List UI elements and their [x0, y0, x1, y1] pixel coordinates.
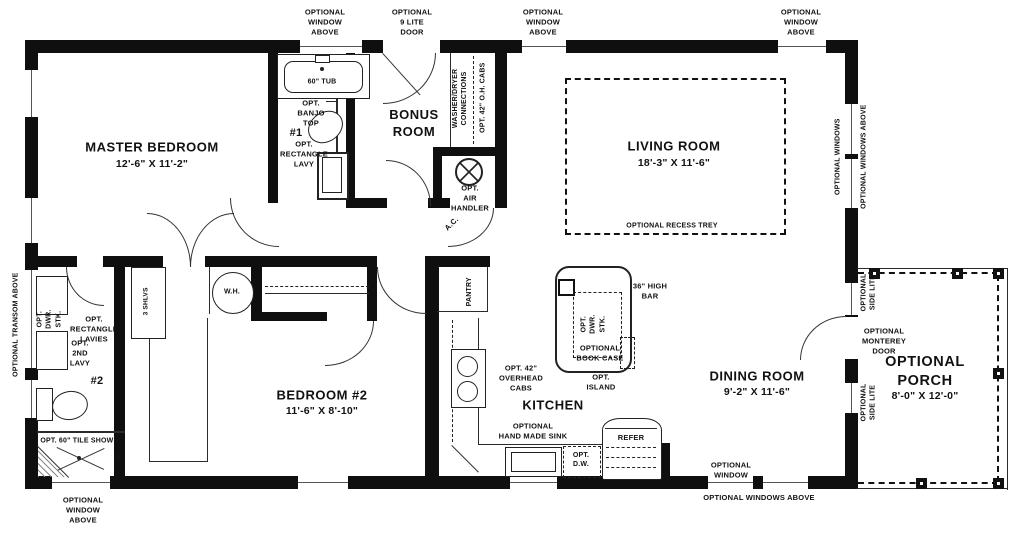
window-glass-line: [851, 159, 852, 208]
label-3-shelves-text: 3 SHLVS: [143, 287, 152, 315]
door-arc-bath1: [230, 198, 279, 247]
shower-door-arrow: [116, 452, 125, 462]
label-bonus-room: BONUS ROOM: [389, 107, 438, 141]
label-2nd-lavy: OPT. 2ND LAVY: [70, 338, 90, 367]
door-arc-bath2: [66, 267, 104, 306]
wall-kitchen-left: [425, 267, 439, 476]
window-glass-line: [31, 380, 32, 418]
label-bedroom2-dims: 11'-6" X 8'-10": [286, 405, 358, 419]
refrigerator-dash: [606, 457, 656, 459]
label-optional-porch: OPTIONAL PORCH: [885, 353, 965, 391]
burner: [457, 356, 478, 377]
porch-rail-dashed: [858, 482, 998, 486]
label-transom-above-text: OPTIONAL TRANSOM ABOVE: [11, 273, 20, 377]
label-monterey-door: OPTIONAL MONTEREY DOOR: [862, 326, 906, 355]
label-island-dwr-stack-text: OPT. DWR. STK.: [580, 314, 608, 333]
label-high-bar: 36" HIGH BAR: [633, 281, 667, 301]
shower-top-line: [37, 431, 125, 433]
banjo-leader-line: [326, 101, 336, 102]
porch-post: [993, 268, 1004, 279]
door-opening-9lite: [383, 40, 440, 53]
counter-corner-diagonal: [451, 445, 479, 473]
lav-bath2: [36, 331, 68, 370]
wall-air-room-left: [433, 147, 442, 200]
toilet-bath2-tank: [36, 388, 53, 421]
pantry-right-line: [487, 267, 488, 312]
alcove-line: [149, 461, 208, 462]
label-air-handler: OPT. AIR HANDLER: [451, 183, 489, 212]
porch-edge-line: [857, 488, 1008, 489]
wall-closet-bottom: [251, 312, 327, 321]
porch-post: [993, 478, 1004, 489]
door-arc-master: [147, 213, 191, 267]
door-arc-monterey: [800, 316, 846, 360]
wall-air-room-top: [438, 147, 495, 156]
label-bath2-number: #2: [91, 374, 104, 388]
label-dishwasher: OPT. D.W.: [573, 451, 589, 469]
window-glass-line: [300, 46, 362, 47]
kitchen-sink-inner: [511, 452, 556, 472]
alcove-line: [207, 318, 208, 462]
door-opening-monterey: [845, 317, 858, 359]
label-optional-windows-text: OPTIONAL WINDOWS: [833, 119, 842, 196]
label-bath2-dwr-stack-text: OPT. DWR. STK.: [36, 309, 64, 328]
label-hand-made-sink: OPTIONAL HAND MADE SINK: [499, 421, 568, 441]
label-water-heater: W.H.: [224, 287, 240, 296]
oh-cabs-dashed-line: [473, 56, 475, 144]
porch-post: [916, 478, 927, 489]
wall-bonus-bottom: [346, 198, 387, 208]
label-tile-shower: OPT. 60" TILE SHOWER: [40, 436, 123, 445]
label-rectangle-lavy: OPT. RECTANGLE LAVY: [280, 139, 328, 168]
window-glass-line: [52, 482, 110, 483]
wall-mid: [425, 256, 490, 267]
label-living-room: LIVING ROOM: [628, 139, 721, 156]
window-glass-line: [708, 482, 753, 483]
label-bottom-window-above: OPTIONAL WINDOW ABOVE: [63, 495, 103, 524]
wall-closet-bottom: [367, 312, 377, 321]
bathtub-drain-dot: [320, 67, 324, 71]
door-arc-master: [190, 213, 234, 267]
toilet-bath2-bowl: [50, 388, 90, 423]
pantry-bottom-line: [437, 311, 488, 312]
label-bottom-window: OPTIONAL WINDOW: [711, 460, 751, 480]
label-living-room-dims: 18'-3" X 11'-6": [638, 157, 710, 171]
label-dining-room-dims: 9'-2" X 11'-6": [724, 386, 790, 400]
label-island: OPT. ISLAND: [586, 372, 615, 392]
label-optional-windows-above-text: OPTIONAL WINDOWS ABOVE: [859, 105, 868, 209]
window-glass-line: [31, 198, 32, 243]
refrigerator-dash: [606, 467, 656, 469]
porch-post: [952, 268, 963, 279]
porch-edge-line: [1007, 268, 1008, 490]
refrigerator-top-line: [605, 428, 657, 429]
shower-drain-dot: [77, 456, 81, 460]
closet-shelf-line: [265, 293, 369, 294]
label-bedroom2: BEDROOM #2: [277, 388, 368, 405]
counter-front-horizontal: [478, 444, 605, 445]
window-glass-line: [31, 270, 32, 368]
window-glass-line: [851, 104, 852, 154]
label-book-case: OPTIONAL BOOK CASE: [576, 343, 623, 363]
door-arc-9lite: [383, 53, 436, 104]
alcove-line: [149, 338, 150, 462]
burner: [457, 381, 478, 402]
wall-exterior-top: [25, 40, 858, 53]
label-tub: 60" TUB: [308, 77, 337, 86]
wall-living-divider: [495, 53, 507, 208]
refrigerator-dash: [606, 447, 656, 449]
window-glass-line: [298, 482, 348, 483]
label-side-lite-1-text: OPTIONAL SIDE LITE: [860, 273, 879, 311]
porch-post: [993, 368, 1004, 379]
wh-closet-left-line: [209, 267, 210, 314]
label-master-bedroom-dims: 12'-6" X 11'-2": [116, 158, 188, 172]
window-glass-line: [851, 283, 852, 315]
label-kitchen: KITCHEN: [522, 398, 583, 415]
label-side-lite-2-text: OPTIONAL SIDE LITE: [860, 383, 879, 421]
label-recess-trey: OPTIONAL RECESS TREY: [623, 221, 720, 230]
label-pantry-text: PANTRY: [465, 277, 474, 306]
wall-mid: [25, 256, 77, 267]
door-arc-bedroom2-hall: [377, 267, 426, 314]
label-banjo-top: OPT. BANJO TOP: [297, 98, 324, 127]
label-dining-room: DINING ROOM: [709, 369, 804, 386]
window-glass-line: [778, 46, 826, 47]
label-top-window-3: OPTIONAL WINDOW ABOVE: [781, 7, 821, 36]
label-refrigerator: REFER: [618, 433, 644, 443]
label-bottom-windows-above: OPTIONAL WINDOWS ABOVE: [703, 493, 814, 503]
window-glass-line: [851, 383, 852, 413]
window-glass-line: [510, 482, 557, 483]
window-glass-line: [763, 482, 808, 483]
label-oh-cabs-text: OPT. 42" O.H. CABS: [478, 63, 487, 133]
door-arc-bonus: [386, 160, 431, 206]
bathtub-notch: [315, 55, 330, 63]
door-arc-bedroom2-closet: [325, 321, 374, 366]
window-glass-line: [31, 70, 32, 117]
window-glass-line: [522, 46, 566, 47]
label-top-window-2: OPTIONAL WINDOW ABOVE: [523, 7, 563, 36]
label-top-window-1: OPTIONAL WINDOW ABOVE: [305, 7, 345, 36]
closet-rod-dashed: [265, 286, 369, 288]
label-master-bedroom: MASTER BEDROOM: [85, 140, 218, 157]
label-washer-dryer-text: WASHER/DRYER CONNECTIONS: [452, 68, 471, 127]
label-bath1-number: #1: [290, 126, 303, 140]
label-overhead-cabs: OPT. 42" OVERHEAD CABS: [499, 363, 543, 392]
label-top-9lite-door: OPTIONAL 9 LITE DOOR: [392, 7, 432, 36]
floor-plan: OPTIONAL WINDOW ABOVE OPTIONAL 9 LITE DO…: [0, 0, 1024, 541]
label-optional-porch-dims: 8'-0" X 12'-0": [892, 390, 959, 404]
